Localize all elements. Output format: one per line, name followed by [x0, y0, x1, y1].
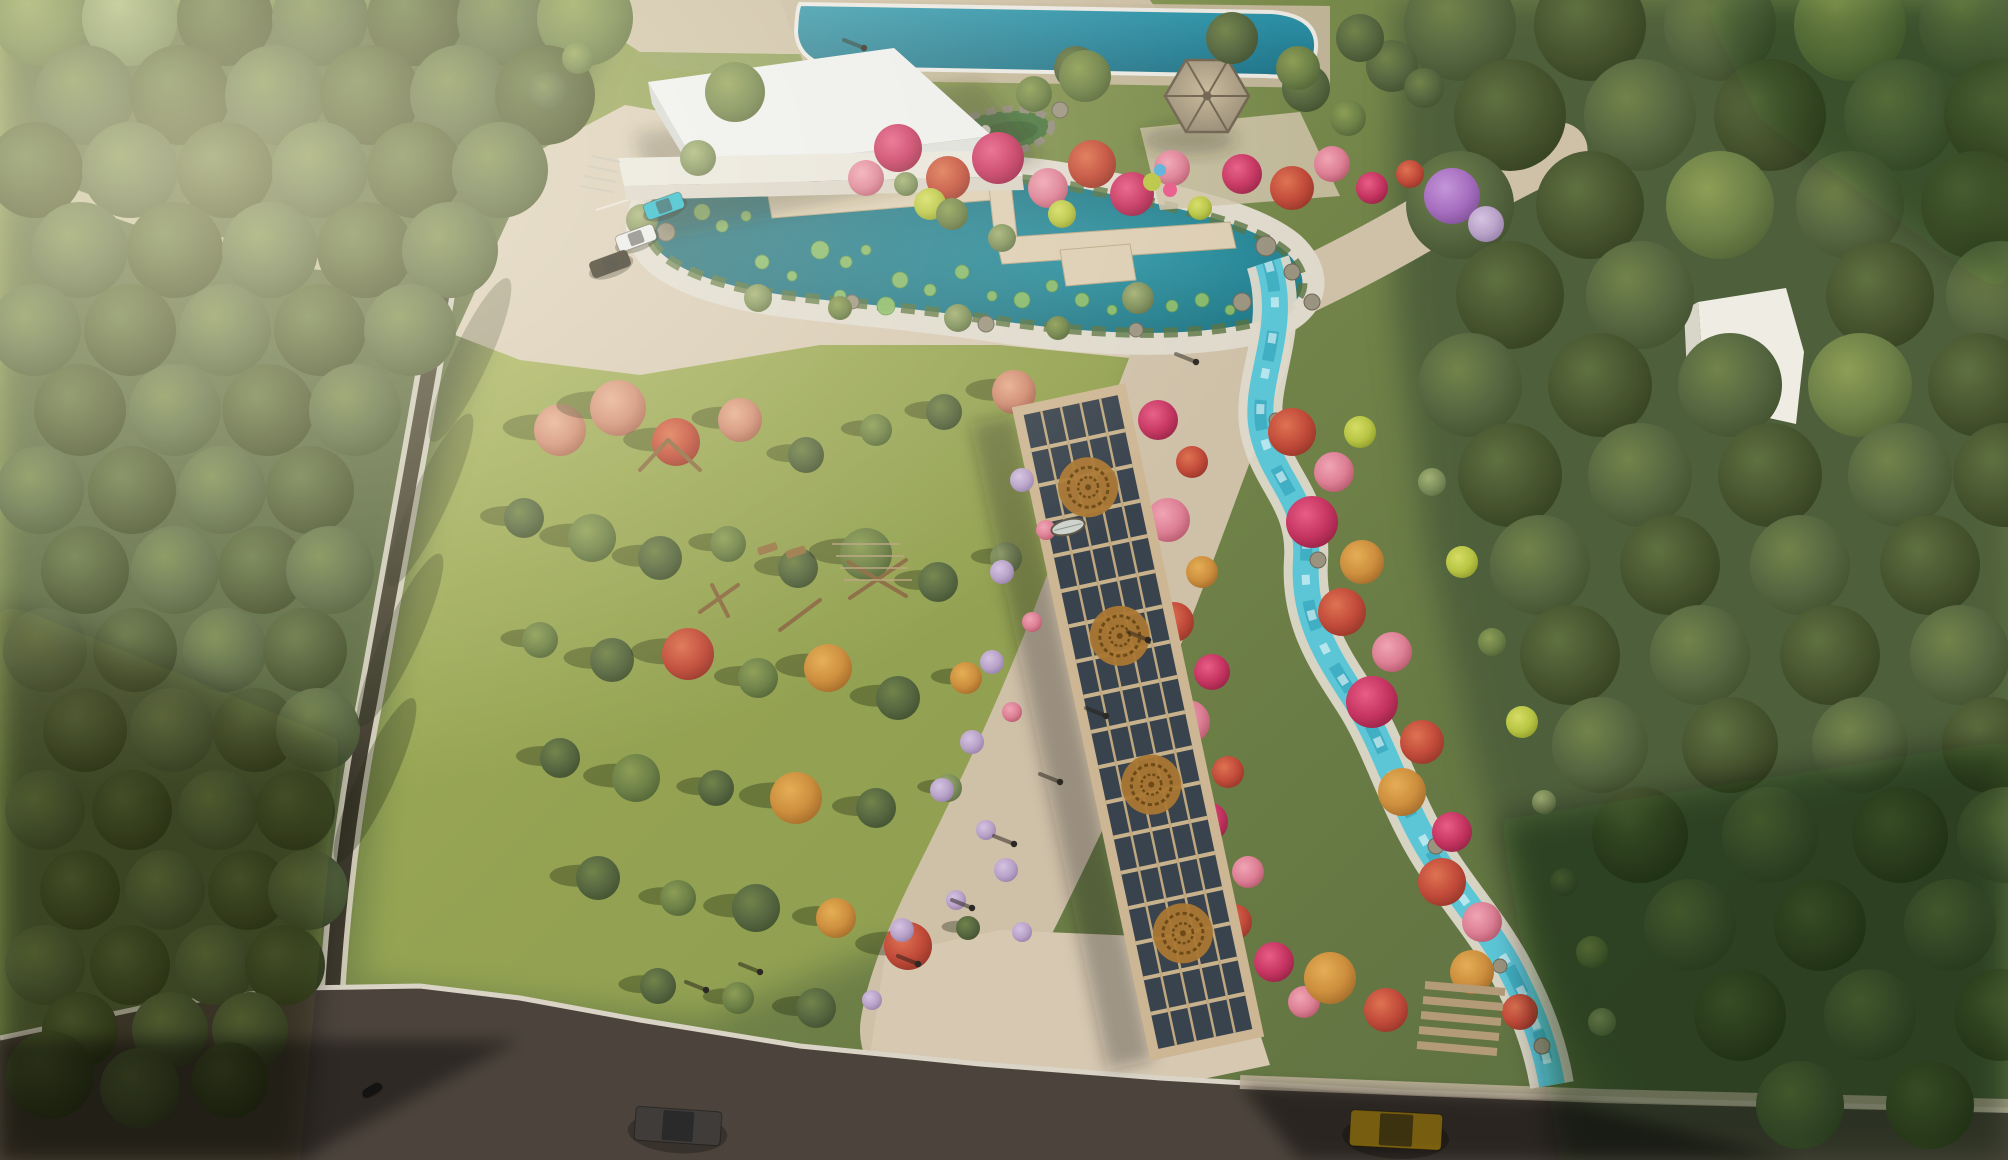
park-aerial-rendering	[0, 0, 2008, 1160]
sun-glow	[0, 0, 2008, 1160]
park-rendering-stage	[0, 0, 2008, 1160]
